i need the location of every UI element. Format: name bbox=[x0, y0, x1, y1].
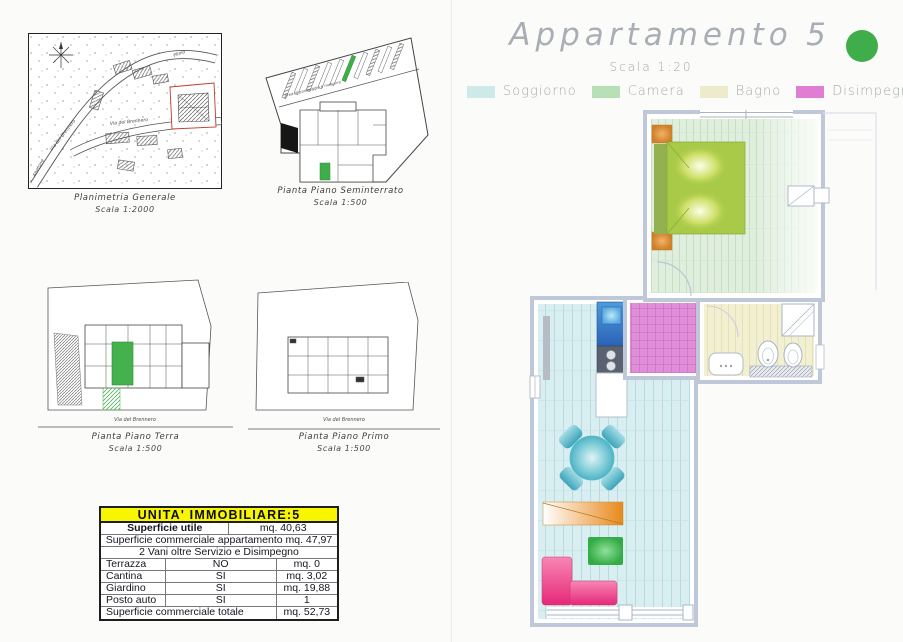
garden-hatch-green bbox=[103, 388, 120, 410]
table-row-posto-auto: Posto auto SI 1 bbox=[101, 595, 337, 607]
bath-ledge bbox=[750, 366, 812, 377]
table-title: UNITA' IMMOBILIARE:5 bbox=[101, 508, 337, 523]
highlighted-unit-green bbox=[112, 342, 133, 385]
sideboard bbox=[543, 502, 623, 525]
unit-data-table: UNITA' IMMOBILIARE:5 Superficie utile mq… bbox=[99, 506, 339, 621]
kitchen-counter bbox=[596, 373, 627, 417]
first-floor-building bbox=[288, 337, 388, 393]
table-row-giardino: Giardino SI mq. 19,88 bbox=[101, 583, 337, 595]
kitchen-unit bbox=[596, 302, 627, 417]
page-divider bbox=[451, 0, 452, 642]
table-row-vani: 2 Vani oltre Servizio e Disimpegno bbox=[101, 547, 337, 559]
table-row-terrazza: Terrazza NO mq. 0 bbox=[101, 559, 337, 571]
basement-building bbox=[300, 102, 386, 182]
scanned-apartment-sheet: { "header": { "title": "Appartamento", "… bbox=[0, 0, 903, 642]
disimpegno-swatch bbox=[796, 86, 824, 98]
street-label-primo: Via del Brennero bbox=[323, 417, 365, 423]
street-label-terra: Via del Brennero bbox=[114, 417, 156, 423]
plan-piano-terra: Via del Brennero bbox=[38, 278, 233, 430]
headboard bbox=[654, 144, 667, 234]
room-legend: Soggiorno Camera Bagno Disimpegno bbox=[467, 84, 887, 99]
legend-item-camera: Camera bbox=[592, 84, 685, 99]
legend-item-soggiorno: Soggiorno bbox=[467, 84, 577, 99]
bottom-window bbox=[547, 605, 693, 620]
plan-seminterrato: Area di parcheggio e manovra bbox=[243, 25, 438, 185]
page-title: Appartamento bbox=[486, 17, 816, 53]
toilet bbox=[758, 341, 778, 367]
unit-color-dot bbox=[846, 30, 878, 62]
caption-primo: Pianta Piano Primo Scala 1:500 bbox=[248, 432, 440, 454]
radiator bbox=[543, 316, 550, 380]
site-map-planimetria: Plinio Via del Brennero Via del Brennero… bbox=[28, 33, 222, 189]
nightstand-bottom bbox=[652, 232, 672, 250]
coffee-table-green bbox=[588, 537, 623, 565]
room-disimpegno bbox=[625, 298, 704, 378]
left-window bbox=[530, 376, 540, 398]
plan-piano-primo: Via del Brennero bbox=[248, 282, 440, 432]
ramp-black bbox=[281, 123, 298, 153]
apartment-floor-plan bbox=[455, 100, 903, 642]
sink bbox=[709, 353, 743, 375]
camera-swatch bbox=[592, 86, 620, 98]
nightstand-top bbox=[652, 125, 672, 143]
duct bbox=[788, 186, 829, 206]
caption-terra: Pianta Piano Terra Scala 1:500 bbox=[38, 432, 233, 454]
room-camera bbox=[645, 110, 876, 300]
legend-item-disimpegno: Disimpegno bbox=[796, 84, 903, 99]
caption-planimetria: Planimetria Generale Scala 1:2000 bbox=[28, 193, 222, 215]
bidet bbox=[784, 343, 802, 367]
plan-scale: Scala 1:20 bbox=[486, 60, 816, 74]
bedroom-window bbox=[700, 110, 793, 119]
pillow-bottom bbox=[670, 189, 730, 233]
table-row-superficie-utile: Superficie utile mq. 40,63 bbox=[101, 523, 337, 535]
room-bagno bbox=[698, 298, 824, 382]
shower bbox=[782, 304, 814, 336]
unit-number: 5 bbox=[796, 17, 836, 53]
neighbor-ramp-hatch bbox=[54, 333, 82, 405]
bath-window bbox=[816, 345, 824, 369]
pillow-top bbox=[670, 144, 730, 188]
table-row-cantina: Cantina SI mq. 3,02 bbox=[101, 571, 337, 583]
dining-table bbox=[570, 436, 614, 480]
table-row-totale: Superficie commerciale totale mq. 52,73 bbox=[101, 607, 337, 619]
bagno-swatch bbox=[700, 86, 728, 98]
caption-seminterrato: Pianta Piano Seminterrato Scala 1:500 bbox=[243, 186, 438, 208]
highlighted-cantina-green bbox=[320, 163, 330, 180]
legend-item-bagno: Bagno bbox=[700, 84, 781, 99]
map-subject-plot bbox=[170, 83, 216, 129]
table-row-commerciale: Superficie commerciale appartamento mq. … bbox=[101, 535, 337, 547]
soggiorno-swatch bbox=[467, 86, 495, 98]
